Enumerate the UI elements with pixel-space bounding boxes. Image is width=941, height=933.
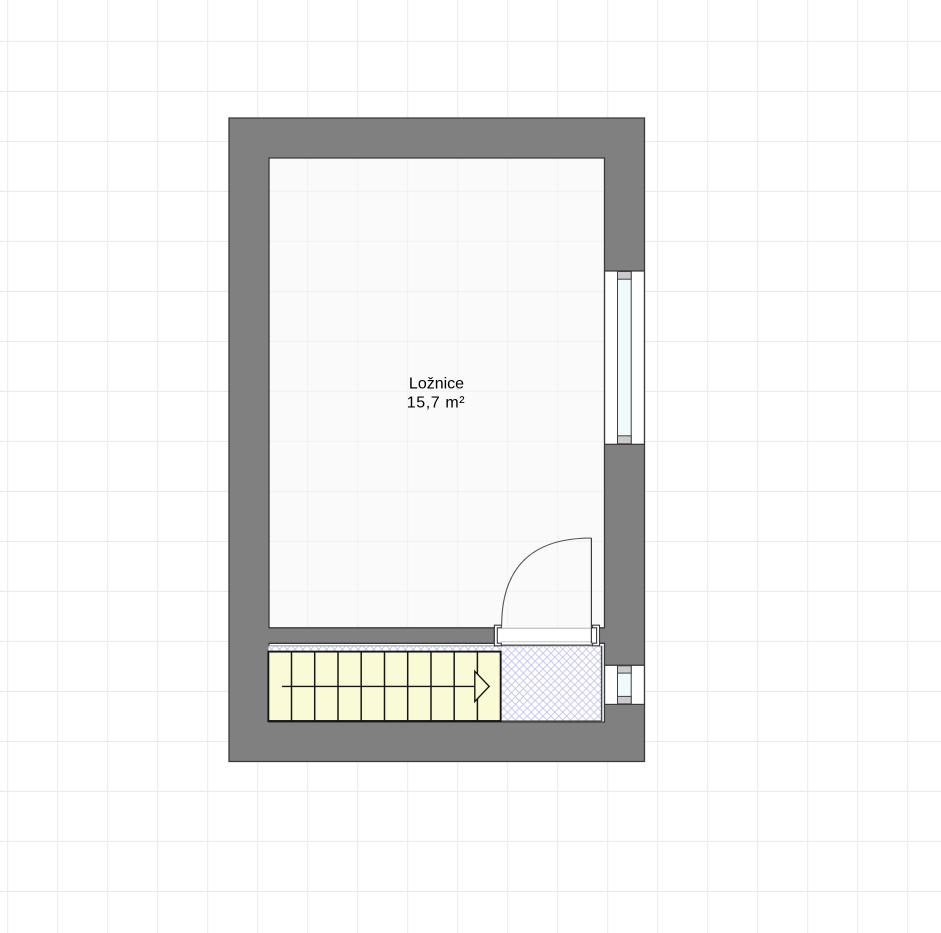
svg-text:Ložnice: Ložnice [409, 376, 464, 393]
svg-text:15,7 m²: 15,7 m² [407, 395, 466, 412]
